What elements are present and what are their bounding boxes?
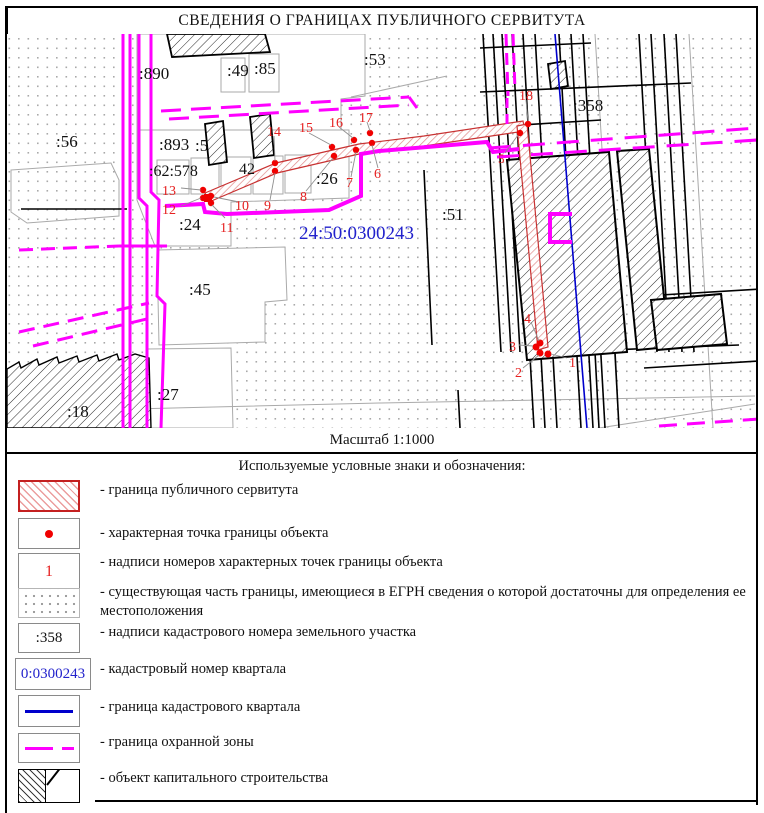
capital-construction-icon: [18, 769, 80, 803]
parcel-label-45: :45: [189, 280, 211, 299]
legend-label: - кадастровый номер квартала: [100, 660, 752, 679]
hatch-half: [19, 770, 46, 802]
legend-label: - надписи номеров характерных точек гран…: [100, 553, 752, 572]
point-label-14: 14: [267, 125, 281, 140]
parcel-label-62-578: :62:578: [149, 163, 198, 180]
bottom-border: [95, 800, 758, 802]
legend-label: - характерная точка границы объекта: [100, 524, 752, 543]
point-label-4: 4: [524, 312, 531, 327]
magenta-dash-long: [25, 747, 53, 750]
parcel-label-27: :27: [157, 385, 179, 404]
point-label-15: 15: [299, 121, 313, 136]
point-label-18: 18: [519, 89, 533, 104]
parcel-number-icon: :358: [18, 623, 80, 653]
point-label-9: 9: [264, 199, 271, 214]
diagonal-line: [46, 769, 73, 786]
scale-label: Масштаб 1:1000: [330, 432, 435, 449]
parcel-label-890: :890: [139, 64, 169, 83]
parcel-label-24: :24: [179, 215, 201, 234]
parcel-label-49: :49: [227, 61, 249, 80]
parcel-label-42: 42: [239, 161, 255, 178]
point-label-11: 11: [220, 221, 233, 236]
point-label-1: 1: [569, 356, 576, 371]
legend-label: - граница публичного сервитута: [100, 481, 752, 500]
legend-label: - граница охранной зоны: [100, 733, 752, 752]
point-label-8: 8: [300, 190, 307, 205]
egrn-dots-icon: [18, 588, 80, 618]
protection-zone-icon: [18, 733, 80, 763]
parcel-label-53: :53: [364, 50, 386, 69]
point-label-13: 13: [162, 184, 176, 199]
page-title: СВЕДЕНИЯ О ГРАНИЦАХ ПУБЛИЧНОГО СЕРВИТУТА: [178, 12, 585, 30]
legend-label: - граница кадастрового квартала: [100, 698, 752, 717]
parcel-label-85: :85: [254, 59, 276, 78]
parcel-label-56: :56: [56, 132, 78, 151]
parcel-label-18: :18: [67, 402, 89, 421]
point-dot: [45, 530, 53, 538]
quarter-number-sample: 0:0300243: [21, 666, 85, 683]
quarter-number-label: 24:50:0300243: [299, 223, 414, 244]
point-label-10: 10: [235, 199, 249, 214]
parcel-label-893: :893: [159, 135, 189, 154]
servitude-hatch-icon: [18, 480, 80, 512]
point-number-icon: 1: [18, 553, 80, 591]
parcel-label-5: :5: [195, 136, 208, 155]
cadastral-map: 1 2 3 4 5 6 7 8 9 10 11 12 13 14 15 16 1…: [7, 34, 756, 428]
point-label-7: 7: [346, 176, 353, 191]
parcel-number-sample: :358: [36, 630, 63, 647]
point-number-sample: 1: [45, 563, 53, 581]
title-bar: СВЕДЕНИЯ О ГРАНИЦАХ ПУБЛИЧНОГО СЕРВИТУТА: [6, 6, 758, 36]
legend-label: - надписи кадастрового номера земельного…: [100, 623, 752, 642]
blue-line: [25, 710, 73, 713]
point-label-6: 6: [374, 167, 381, 182]
legend-header: Используемые условные знаки и обозначени…: [6, 458, 758, 475]
point-label-12: 12: [162, 203, 176, 218]
point-label-16: 16: [329, 116, 343, 131]
map-area: 1 2 3 4 5 6 7 8 9 10 11 12 13 14 15 16 1…: [7, 34, 756, 428]
point-label-5: 5: [498, 151, 505, 166]
divider-line: [5, 452, 758, 454]
point-label-2: 2: [515, 366, 522, 381]
parcel-label-51: :51: [442, 205, 464, 224]
parcel-label-26: :26: [316, 169, 338, 188]
red-dot-icon: [18, 518, 80, 549]
quarter-boundary-icon: [18, 695, 80, 727]
border-right: [756, 6, 758, 805]
parcel-label-358: :358: [573, 96, 603, 115]
legend-label: - существующая часть границы, имеющиеся …: [100, 583, 752, 621]
point-label-17: 17: [359, 111, 373, 126]
quarter-number-icon: 0:0300243: [15, 658, 91, 690]
magenta-dash-short: [62, 747, 74, 750]
scale-row: Масштаб 1:1000: [6, 428, 758, 452]
point-label-3: 3: [509, 340, 516, 355]
document-page: СВЕДЕНИЯ О ГРАНИЦАХ ПУБЛИЧНОГО СЕРВИТУТА: [0, 0, 764, 813]
legend-label: - объект капитального строительства: [100, 769, 752, 788]
